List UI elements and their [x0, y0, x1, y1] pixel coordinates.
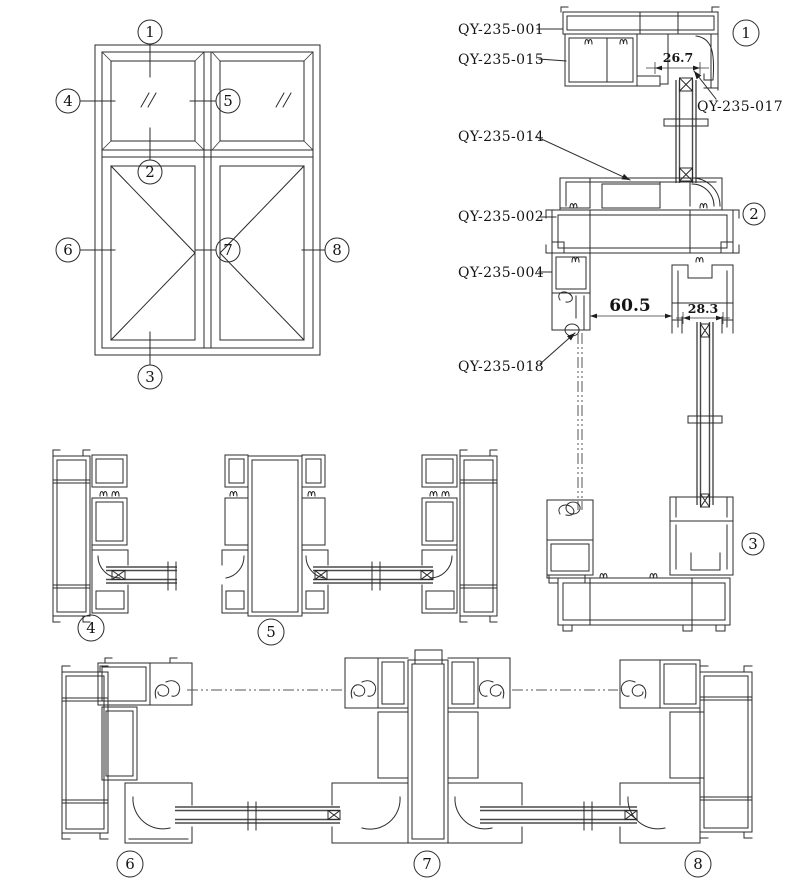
glazing-bead: [455, 797, 492, 829]
part-label-qy-235-004: QY-235-004: [458, 265, 544, 281]
glass-break-marks: [248, 802, 256, 830]
section-marker-8: 8: [693, 855, 703, 873]
part-label-qy-235-001: QY-235-001: [458, 22, 544, 38]
horizontal-section-4-jamb: 4: [53, 450, 128, 641]
section-marker-3: 3: [748, 535, 758, 553]
window-outer-frame: [95, 45, 320, 355]
glass-horizontal-4-5: [106, 562, 177, 590]
profile-qy-235-004: [552, 253, 590, 336]
glass-break-marks: [372, 562, 380, 590]
vertical-section-1-head: 26.7 1: [561, 7, 759, 90]
elevation-drawing: 1 2 3 4 5 6 7 8: [56, 20, 349, 389]
glass-unit-lower: [688, 322, 722, 507]
section-marker-2: 2: [749, 205, 759, 223]
callout-number-6: 6: [63, 241, 73, 259]
glass-horizontal-5-right: [313, 562, 433, 590]
section-marker-4: 4: [86, 619, 96, 637]
sash-lock-hook: [621, 681, 645, 698]
callout-number-8: 8: [332, 241, 342, 259]
horizontal-section-right-jamb: [422, 450, 497, 622]
glass-hatch-marks: [276, 93, 291, 107]
sash-lock-hook: [479, 681, 503, 698]
profile-fixed-head: [672, 265, 733, 333]
section-marker-7: 7: [422, 855, 432, 873]
dimension-text-26-7: 26.7: [663, 50, 693, 65]
glass-horizontal-6-7: [175, 802, 340, 830]
glass-break-marks: [168, 562, 176, 590]
horizontal-section-8-jamb: 8: [620, 660, 752, 877]
horizontal-section-6-jamb: 6: [62, 658, 192, 877]
part-label-qy-235-014: QY-235-014: [458, 129, 544, 145]
bottom-left-panel: [111, 166, 195, 340]
glazing-bead: [226, 556, 244, 578]
callout-number-5: 5: [223, 92, 233, 110]
dimension-26-7: 26.7: [646, 50, 709, 74]
profile-fixed-sill: [670, 497, 733, 575]
part-label-qy-235-015: QY-235-015: [458, 52, 544, 68]
section-marker-5: 5: [266, 623, 276, 641]
sash-lock-hook: [155, 681, 179, 698]
section-marker-1: 1: [741, 24, 751, 42]
top-left-sash: [102, 52, 204, 150]
callout-number-2: 2: [145, 163, 155, 181]
dimension-text-28-3: 28.3: [688, 301, 718, 316]
part-label-qy-235-018: QY-235-018: [458, 359, 544, 375]
callout-number-7: 7: [223, 241, 233, 259]
callout-number-1: 1: [145, 23, 155, 41]
glass-hatch-marks: [141, 93, 156, 107]
dimension-text-60-5: 60.5: [609, 296, 650, 316]
horizontal-section-7-mullion: 7: [332, 650, 522, 877]
part-label-qy-235-002: QY-235-002: [458, 209, 544, 225]
glazing-bead: [362, 797, 400, 829]
center-mullion: [204, 52, 211, 348]
dimension-60-5: 60.5: [590, 296, 672, 321]
window-inner-frame: [102, 52, 313, 348]
sash-lock-hook: [351, 681, 375, 698]
glass-break-marks: [584, 802, 592, 830]
part-labels: QY-235-001 QY-235-015 QY-235-017 QY-235-…: [458, 22, 783, 375]
vertical-section-3-sill: 3: [547, 497, 764, 631]
glazing-bridge: [688, 416, 722, 423]
glazing-bridge: [664, 119, 708, 126]
callout-number-4: 4: [63, 92, 73, 110]
cad-sheet: 1 2 3 4 5 6 7 8 26.7 1: [0, 0, 800, 883]
opening-symbol: [111, 166, 195, 340]
elevation-callouts: 1 2 3 4 5 6 7 8: [56, 20, 349, 389]
glazing-bead: [133, 797, 170, 829]
glass-unit-upper: [664, 78, 708, 183]
sash-center-line-vertical: [578, 333, 582, 510]
horizontal-section-5-mullion: 5: [222, 455, 328, 645]
callout-number-3: 3: [145, 368, 155, 386]
glass-horizontal-7-8: [480, 802, 637, 830]
part-label-qy-235-017: QY-235-017: [697, 99, 783, 115]
transom: [102, 150, 313, 157]
cad-drawing: 1 2 3 4 5 6 7 8 26.7 1: [0, 0, 800, 883]
section-marker-6: 6: [125, 855, 135, 873]
vertical-section-2-transom: 60.5 28.3 2: [546, 178, 765, 336]
